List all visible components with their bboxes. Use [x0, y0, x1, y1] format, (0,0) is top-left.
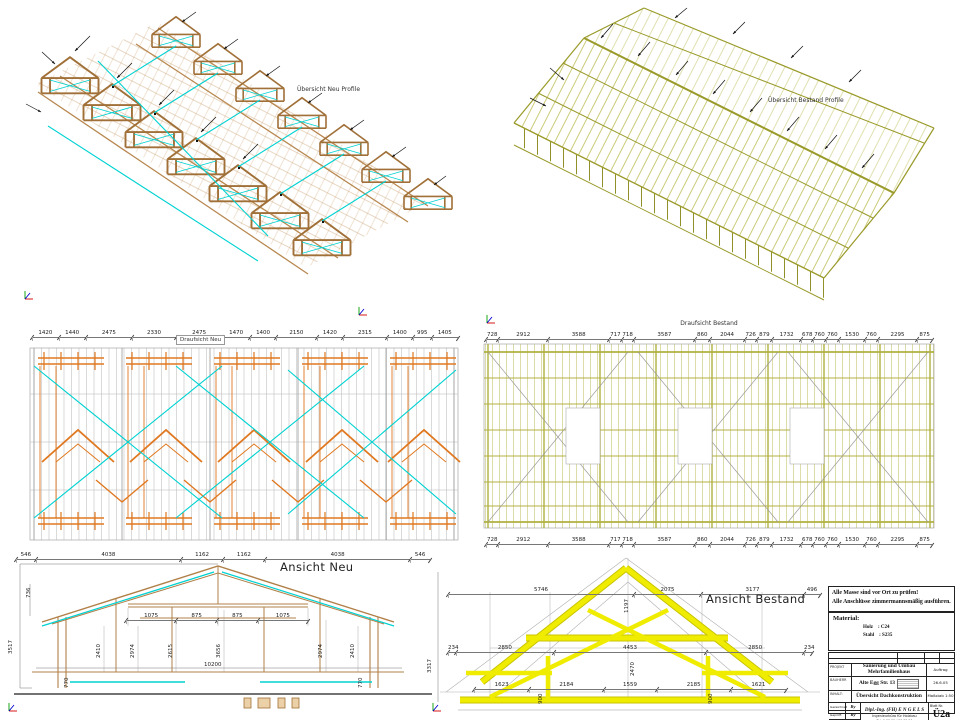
- material-value: : C24: [878, 625, 890, 630]
- dim-segment: 760: [826, 329, 839, 340]
- view-draufsicht-bestand: Draufsicht Bestand 728291235887177183587…: [478, 318, 940, 550]
- dim-segment: 879: [757, 534, 772, 545]
- view-ansicht-neu: 5464038116211624038546 Ansicht Neu: [12, 548, 434, 716]
- ucs-axis-icon: [356, 304, 370, 318]
- dim-segment: 1440: [59, 327, 86, 338]
- order-date: 26.6.05: [927, 677, 954, 690]
- material-label: Material:: [833, 615, 950, 622]
- title-block-project-row: PROJEKT Sanierung und Umbau Mehrfamilien…: [829, 664, 954, 677]
- dim-chain-draufsicht-neu-top: 1420144024752330247514701400215014202315…: [32, 327, 458, 338]
- scale-value: 1:50: [945, 694, 954, 698]
- dim-segment: 717: [609, 329, 621, 340]
- revision-strip: [829, 653, 954, 664]
- sign-value: Ry: [846, 703, 860, 710]
- dim-segment: 760: [865, 534, 878, 545]
- view-title-ansicht-bestand: Ansicht Bestand: [706, 592, 805, 606]
- dim-segment: 1162: [223, 549, 265, 560]
- title-block-content-row: INHALT: Übersicht Dachkonstruktion Maßst…: [829, 691, 954, 703]
- dim-segment: 678: [801, 329, 813, 340]
- content-label: INHALT:: [829, 691, 852, 702]
- dim-segment: 728: [486, 329, 498, 340]
- title-block-client-row: BAUHERR Alte Egg Str. 13 26.6.05: [829, 677, 954, 691]
- dim-segment: 4038: [265, 549, 410, 560]
- dim-segment: 2044: [710, 329, 745, 340]
- dim-label: 2410: [350, 644, 356, 658]
- dim-chain-draufsicht-bestand-top: 7282912358871771835878602044726879173267…: [486, 329, 932, 340]
- dim-segment: 1162: [181, 549, 223, 560]
- dim-segment: 860: [695, 534, 710, 545]
- dim-segment: 1732: [772, 534, 802, 545]
- dim-segment: 3588: [548, 534, 609, 545]
- drawing-sheet: Übersicht Neu Profile: [0, 0, 960, 720]
- firm-name: Dipl.-Ing. (FH) E N G E L S: [865, 708, 924, 713]
- dim-segment: 1732: [772, 329, 802, 340]
- dim-segment: 2475: [86, 327, 132, 338]
- sheet-number-cell: Blatt Nr. Ü2a: [929, 703, 954, 720]
- dim-segment: 995: [413, 327, 432, 338]
- signature-grid: Gezeichnet Ry Geprüft Ry Datum: [829, 703, 861, 720]
- dim-chain-ansicht-neu-top: 5464038116211624038546: [16, 549, 430, 560]
- dim-segment: 1400: [250, 327, 276, 338]
- ucs-axis-icon: [22, 288, 36, 302]
- dim-segment: 2044: [710, 534, 745, 545]
- dim-segment: 2330: [132, 327, 176, 338]
- dim-label: 900: [708, 694, 714, 705]
- ansicht-neu-drawing: [12, 560, 434, 716]
- sign-value: Ry: [846, 711, 860, 718]
- dim-label: 2974: [130, 644, 136, 658]
- dim-segment: 678: [801, 534, 813, 545]
- dim-segment: 546: [410, 549, 430, 560]
- ucs-axis-icon: [430, 700, 444, 714]
- dim-label: 2615: [168, 644, 174, 658]
- dim-segment: 1470: [222, 327, 250, 338]
- dim-segment: 546: [16, 549, 36, 560]
- material-value: : S235: [879, 633, 892, 638]
- dim-segment: 2295: [878, 534, 917, 545]
- dim-segment: 4038: [36, 549, 181, 560]
- dim-segment: 3587: [634, 329, 695, 340]
- dim-segment: 1530: [839, 329, 865, 340]
- dim-segment: 718: [622, 329, 634, 340]
- dim-segment: 2912: [498, 329, 548, 340]
- dim-label: 2470: [630, 662, 636, 676]
- dim-label: 3656: [216, 644, 222, 658]
- material-row-holz: Holz : C24: [863, 625, 950, 630]
- view-title-uebersicht-bestand: Übersicht Bestand Profile: [768, 97, 844, 104]
- dim-segment: 879: [757, 329, 772, 340]
- firm-line: Ingenieurbüro für Holzbau: [872, 714, 916, 718]
- dim-segment: 875: [917, 534, 932, 545]
- sign-label: Gezeichnet: [829, 703, 846, 710]
- material-name: Stahl: [863, 633, 874, 638]
- dim-label: 3317: [427, 659, 433, 673]
- dim-segment: 1420: [32, 327, 59, 338]
- draufsicht-neu-drawing: [26, 342, 464, 546]
- dim-label: 736: [26, 588, 32, 599]
- ucs-axis-icon: [6, 700, 20, 714]
- ucs-axis-icon: [484, 312, 498, 326]
- dim-segment: 3587: [634, 534, 695, 545]
- draufsicht-bestand-drawing: [478, 342, 940, 532]
- dim-segment: 2912: [498, 534, 548, 545]
- uebersicht-neu-drawing: [8, 6, 470, 314]
- view-title-draufsicht-bestand: Draufsicht Bestand: [478, 320, 940, 327]
- dim-label: 770: [358, 678, 364, 689]
- title-block: PROJEKT Sanierung und Umbau Mehrfamilien…: [828, 652, 955, 714]
- dim-label-total-width: 10200: [204, 662, 222, 668]
- material-row-stahl: Stahl : S235: [863, 633, 950, 638]
- sign-label: Geprüft: [829, 711, 846, 718]
- dim-segment: 1400: [387, 327, 413, 338]
- dim-segment: 3588: [548, 329, 609, 340]
- dim-label: 2974: [318, 644, 324, 658]
- dim-label: 770: [64, 678, 70, 689]
- general-notes: Alle Masse sind vor Ort zu prüfen! Alle …: [828, 586, 955, 612]
- sheet-number: Ü2a: [929, 709, 954, 720]
- client-address: Alte Egg Str. 13: [852, 677, 927, 690]
- project-label: PROJEKT: [829, 664, 852, 676]
- dim-segment: 760: [813, 534, 826, 545]
- view-uebersicht-bestand: Übersicht Bestand Profile: [472, 6, 954, 318]
- dim-segment: 1530: [839, 534, 865, 545]
- scale-label: Maßstab: [928, 694, 944, 698]
- dim-segment: 718: [622, 534, 634, 545]
- dim-segment: 1420: [317, 327, 344, 338]
- view-ansicht-bestand: 574620753177496 Ansicht Bestand 23428504…: [430, 552, 832, 718]
- ansicht-bestand-drawing: [430, 552, 832, 718]
- dim-segment: 760: [826, 534, 839, 545]
- dim-label: 2410: [96, 644, 102, 658]
- note-line-1: Alle Masse sind vor Ort zu prüfen!: [832, 589, 951, 598]
- dim-segment: 760: [865, 329, 878, 340]
- dim-segment: 717: [609, 534, 621, 545]
- scale-cell: Maßstab 1:50: [927, 691, 954, 702]
- dim-segment: 728: [486, 534, 498, 545]
- dim-segment: 726: [745, 534, 757, 545]
- dim-label: 3517: [8, 640, 14, 654]
- sheet-content: Übersicht Dachkonstruktion: [852, 691, 927, 702]
- note-line-2: Alle Anschlüsse zimmermannsmäßig ausführ…: [832, 598, 951, 607]
- uebersicht-bestand-drawing: [472, 6, 954, 318]
- dim-segment: 1405: [432, 327, 458, 338]
- view-draufsicht-neu: 1420144024752330247514701400215014202315…: [26, 318, 464, 548]
- project-name: Sanierung und Umbau Mehrfamilienhaus: [852, 664, 927, 676]
- client-label: BAUHERR: [829, 677, 852, 690]
- dim-chain-draufsicht-bestand-bottom: 7282912358871771835878602044726879173267…: [486, 534, 932, 545]
- approval-stamp: [897, 679, 919, 689]
- dim-label: 1197: [624, 599, 630, 613]
- client-text: Alte Egg Str. 13: [859, 681, 895, 687]
- engineering-firm: Dipl.-Ing. (FH) E N G E L S Ingenieurbür…: [861, 703, 929, 720]
- view-uebersicht-neu: Übersicht Neu Profile: [8, 6, 470, 314]
- dim-segment: 760: [813, 329, 826, 340]
- title-block-bottom: Gezeichnet Ry Geprüft Ry Datum Dipl.-Ing…: [829, 703, 954, 720]
- dim-segment: 2315: [343, 327, 386, 338]
- dim-segment: 726: [745, 329, 757, 340]
- dim-segment: 2150: [276, 327, 316, 338]
- material-name: Holz: [863, 625, 873, 630]
- dim-label: 900: [538, 694, 544, 705]
- view-title-uebersicht-neu: Übersicht Neu Profile: [297, 86, 360, 93]
- dim-segment: 2295: [878, 329, 917, 340]
- order-label: Auftrag: [927, 664, 954, 676]
- dim-segment: 875: [917, 329, 932, 340]
- material-box: Material: Holz : C24 Stahl : S235: [828, 612, 955, 651]
- dim-segment: 860: [695, 329, 710, 340]
